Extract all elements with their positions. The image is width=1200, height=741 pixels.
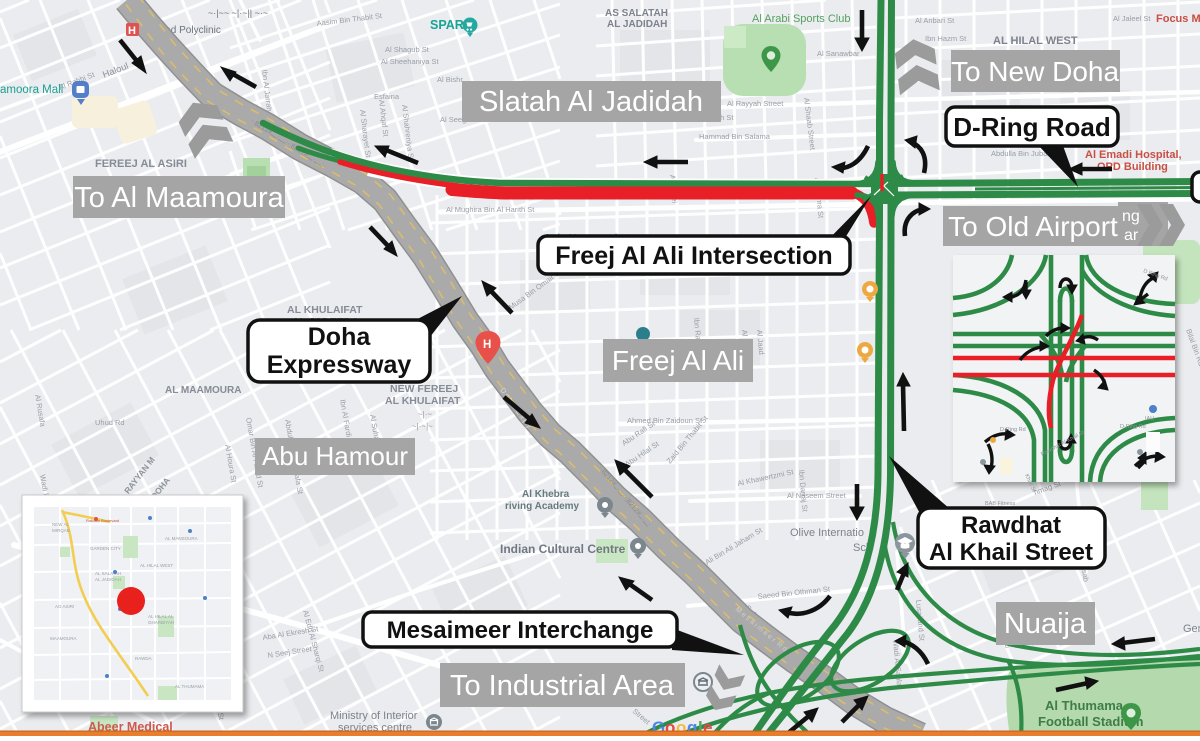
svg-text:MIRQAB: MIRQAB: [52, 528, 70, 533]
svg-text:NEW AL: NEW AL: [52, 522, 70, 527]
svg-text:Abu Hamour: Abu Hamour: [262, 441, 408, 471]
svg-text:Al Jaleel St: Al Jaleel St: [1113, 14, 1151, 23]
svg-text:Ibn Hazm St: Ibn Hazm St: [925, 34, 967, 43]
svg-text:GARDEN CITY: GARDEN CITY: [90, 546, 121, 551]
svg-text:Nuaija: Nuaija: [1004, 608, 1087, 640]
svg-text:To New Doha: To New Doha: [951, 56, 1120, 87]
svg-text:Rawdhat: Rawdhat: [961, 512, 1061, 539]
svg-text:AL JADIDAH: AL JADIDAH: [95, 577, 121, 582]
svg-text:AL KHULAIFAT: AL KHULAIFAT: [287, 304, 363, 316]
svg-text:Al Khebra: Al Khebra: [522, 489, 570, 500]
svg-text:Ahmed Bin Zaidoun St: Ahmed Bin Zaidoun St: [627, 416, 703, 425]
svg-text:amoora Mall: amoora Mall: [0, 84, 63, 96]
svg-text:Al Khail Street: Al Khail Street: [929, 539, 1093, 566]
svg-text:H: H: [128, 25, 136, 37]
svg-text:SPAR: SPAR: [430, 18, 464, 32]
svg-text:AL JADIDAH: AL JADIDAH: [607, 19, 667, 30]
svg-text:Al Naseem Street: Al Naseem Street: [787, 491, 847, 500]
svg-text:Hammad Bin Salama: Hammad Bin Salama: [699, 132, 771, 141]
svg-text:AL MANSOURA: AL MANSOURA: [165, 536, 198, 541]
svg-text:AL THUMAMA: AL THUMAMA: [175, 684, 204, 689]
svg-text:Rabaan Boulevard: Rabaan Boulevard: [86, 518, 119, 523]
svg-text:Al Sanawbar: Al Sanawbar: [817, 49, 860, 58]
svg-text:To Al Maamoura: To Al Maamoura: [74, 182, 284, 214]
svg-text:Indian Cultural Centre: Indian Cultural Centre: [500, 542, 626, 556]
svg-text:Ministry of Interior: Ministry of Interior: [330, 710, 418, 722]
svg-text:Mesaimeer Interchange: Mesaimeer Interchange: [387, 617, 654, 644]
svg-text:H: H: [483, 339, 491, 351]
svg-text:AL KHULAIFAT: AL KHULAIFAT: [385, 395, 461, 407]
svg-text:MAAMOURA: MAAMOURA: [50, 636, 77, 641]
svg-text:Uhud Rd: Uhud Rd: [95, 418, 125, 427]
svg-text:Focus M: Focus M: [1156, 13, 1200, 25]
svg-text:RAWDA: RAWDA: [135, 656, 152, 661]
svg-text:Olive Internatio: Olive Internatio: [790, 527, 864, 539]
svg-text:Al Anbari St: Al Anbari St: [915, 16, 955, 25]
svg-text:AL HILAL WEST: AL HILAL WEST: [993, 35, 1078, 47]
svg-text:Al Mughira Bin Al Harith St: Al Mughira Bin Al Harith St: [446, 205, 535, 214]
svg-text:ar: ar: [1124, 227, 1139, 244]
svg-text:Freej Al Ali Intersection: Freej Al Ali Intersection: [555, 242, 832, 270]
svg-text:BAB Fitness: BAB Fitness: [985, 501, 1016, 507]
svg-text:Al Shagub St: Al Shagub St: [385, 45, 430, 54]
svg-text:IAU: IAU: [1145, 416, 1154, 422]
svg-text:~|·~: ~|·~: [418, 410, 432, 419]
svg-text:ng: ng: [1122, 208, 1140, 225]
svg-text:~·|~~ ~|·~|| ~·~: ~·|~~ ~|·~|| ~·~: [208, 8, 268, 18]
svg-text:To Old Airport: To Old Airport: [948, 211, 1118, 242]
svg-text:Freej Al Ali: Freej Al Ali: [612, 345, 744, 376]
svg-text:FEREEJ AL ASIRI: FEREEJ AL ASIRI: [95, 158, 187, 170]
svg-text:Al Sheehaniya St: Al Sheehaniya St: [381, 57, 439, 66]
svg-text:AG ASIRI: AG ASIRI: [55, 604, 74, 609]
svg-text:riving Academy: riving Academy: [505, 501, 580, 512]
svg-text:AL HILAL WEST: AL HILAL WEST: [140, 563, 173, 568]
svg-text:AS SALATAH: AS SALATAH: [605, 8, 668, 19]
svg-text:AL HILAL AL: AL HILAL AL: [148, 614, 174, 619]
svg-text:Al Arabi Sports Club: Al Arabi Sports Club: [752, 13, 850, 25]
svg-text:Al Thumama: Al Thumama: [1045, 698, 1124, 713]
svg-text:Gen: Gen: [1183, 623, 1200, 635]
svg-text:AL SALATAH: AL SALATAH: [95, 571, 121, 576]
svg-text:D-Ring Rd: D-Ring Rd: [1120, 424, 1146, 430]
svg-text:Expressway: Expressway: [267, 351, 412, 379]
svg-text:Al Rayyah Street: Al Rayyah Street: [727, 99, 784, 108]
svg-text:AL MAAMOURA: AL MAAMOURA: [165, 385, 241, 396]
svg-text:Al Bishr: Al Bishr: [437, 75, 463, 84]
svg-text:To Industrial Area: To Industrial Area: [450, 670, 675, 702]
svg-text:D-Ring Rd: D-Ring Rd: [1000, 427, 1026, 433]
svg-text:NEW FEREEJ: NEW FEREEJ: [390, 383, 458, 395]
svg-text:Slatah Al Jadidah: Slatah Al Jadidah: [479, 86, 703, 118]
svg-text:Doha: Doha: [308, 323, 372, 351]
svg-text:~|·~|~: ~|·~|~: [412, 422, 433, 431]
svg-text:D-Ring Road: D-Ring Road: [953, 112, 1110, 142]
svg-text:Al Emadi Hospital,: Al Emadi Hospital,: [1085, 149, 1182, 161]
svg-text:GHARBIYAH: GHARBIYAH: [148, 620, 174, 625]
